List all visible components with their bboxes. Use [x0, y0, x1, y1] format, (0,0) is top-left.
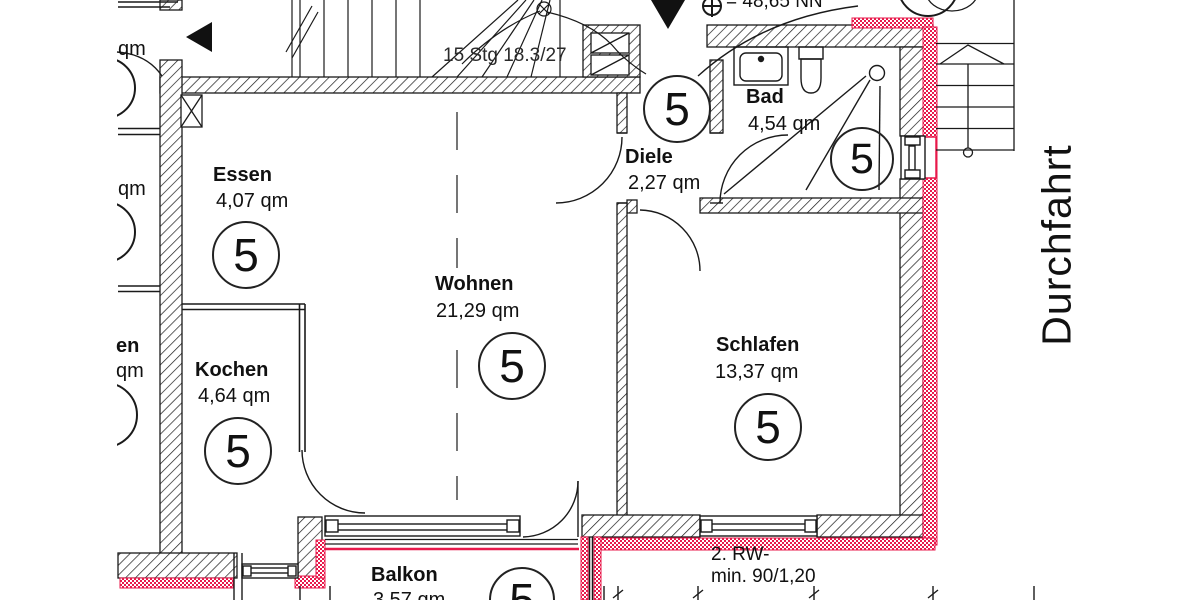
stair-count-label: 15 Stg 18.3/27 [443, 46, 567, 67]
room-label-diele: Diele [625, 146, 673, 168]
unit-badge-balkon: 5 [489, 567, 555, 600]
room-area-essen: 4,07 qm [216, 190, 288, 212]
unit-badge-wohnen: 5 [478, 332, 546, 400]
neighbor-area-1: qm [118, 38, 146, 60]
room-area-bad: 4,54 qm [748, 113, 820, 135]
escape-route-label-2: min. 90/1,20 [711, 567, 816, 588]
room-area-kochen: 4,64 qm [198, 385, 270, 407]
unit-badge-diele: 5 [643, 75, 711, 143]
durchfahrt-label: Durchfahrt [1034, 144, 1079, 345]
room-area-schlafen: 13,37 qm [715, 361, 798, 383]
room-label-bad: Bad [746, 86, 784, 108]
escape-route-label-1: 2. RW- [711, 545, 769, 566]
room-label-kochen: Kochen [195, 359, 268, 381]
neighbor-name-3: en [116, 335, 139, 357]
room-label-schlafen: Schlafen [716, 334, 799, 356]
room-area-wohnen: 21,29 qm [436, 300, 519, 322]
room-label-balkon: Balkon [371, 564, 438, 586]
unit-badge-schlafen: 5 [734, 393, 802, 461]
neighbor-area-2: qm [118, 178, 146, 200]
room-label-wohnen: Wohnen [435, 273, 514, 295]
level-label: = 48,65 NN [726, 0, 823, 13]
labels-layer: Essen 4,07 qm 5 Kochen 4,64 qm 5 Wohnen … [0, 0, 1200, 600]
unit-badge-essen: 5 [212, 221, 280, 289]
neighbor-area-3: qm [116, 360, 144, 382]
unit-badge-bad: 5 [830, 127, 894, 191]
room-area-balkon: 3,57 qm [373, 589, 445, 600]
room-area-diele: 2,27 qm [628, 172, 700, 194]
floor-plan: Essen 4,07 qm 5 Kochen 4,64 qm 5 Wohnen … [0, 0, 1200, 600]
room-label-essen: Essen [213, 164, 272, 186]
unit-badge-kochen: 5 [204, 417, 272, 485]
